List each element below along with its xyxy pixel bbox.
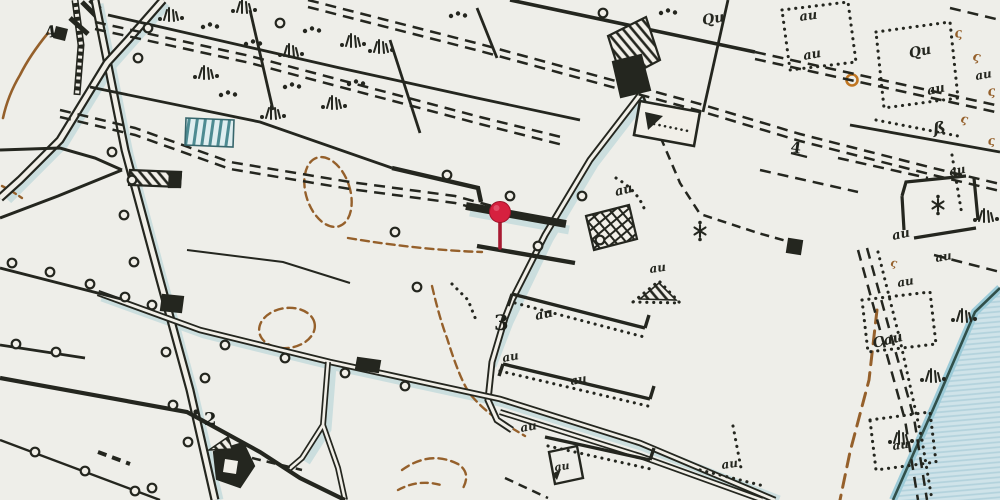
tree-marker — [281, 354, 290, 363]
tree-marker — [120, 211, 129, 220]
script-mark-au: au — [554, 459, 571, 474]
tree-marker — [121, 293, 130, 302]
pin-highlight — [494, 205, 500, 211]
script-mark-au: au — [896, 273, 915, 290]
script-mark-au: au — [720, 456, 739, 472]
script-mark-au: au — [501, 348, 520, 365]
tree-marker — [81, 467, 90, 476]
tree-marker — [534, 242, 543, 251]
tree-marker — [413, 283, 422, 292]
script-mark-au: au — [802, 46, 822, 64]
script-mark-au: au — [648, 260, 667, 276]
parcel-number-2: 2 — [204, 409, 217, 430]
building-solid — [161, 295, 183, 312]
tree-marker — [144, 24, 153, 33]
tree-marker — [578, 192, 587, 201]
tree-marker — [31, 448, 40, 457]
tree-marker — [169, 401, 178, 410]
tree-marker — [341, 369, 350, 378]
tree-marker — [391, 228, 400, 237]
script-mark-au: au — [519, 418, 538, 435]
tree-marker — [276, 19, 285, 28]
script-mark-au: au — [934, 248, 953, 265]
tree-marker — [46, 268, 55, 277]
tree-marker — [86, 280, 95, 289]
tree-marker — [8, 259, 17, 268]
script-mark-au: au — [974, 66, 993, 83]
tree-marker — [148, 301, 157, 310]
tree-marker — [443, 171, 452, 180]
tree-marker — [221, 341, 230, 350]
farm-courtyard — [223, 459, 238, 474]
building-solid — [787, 239, 802, 254]
tree-marker — [401, 382, 410, 391]
historical-map-canvas: 4 2 3 4 Qu Qu au au au au au au au au au… — [0, 0, 1000, 500]
tree-marker — [162, 348, 171, 357]
tree-marker — [599, 9, 608, 18]
script-mark-au: au — [798, 8, 818, 25]
junction-dot — [193, 409, 198, 414]
tree-marker — [506, 192, 515, 201]
plantation-bars — [185, 118, 234, 147]
tree-marker — [108, 148, 117, 157]
tree-marker — [134, 54, 143, 63]
tree-marker — [201, 374, 210, 383]
script-mark-au: au — [891, 437, 910, 453]
building-solid — [356, 358, 380, 372]
tree-marker — [184, 438, 193, 447]
tree-marker — [52, 348, 61, 357]
tree-marker — [131, 487, 140, 496]
tree-marker — [148, 484, 157, 493]
tree-marker — [596, 236, 605, 245]
parcel-number-3: 3 — [494, 310, 509, 335]
tree-marker — [130, 258, 139, 267]
script-mark-au: au — [569, 371, 588, 388]
tree-marker — [12, 340, 21, 349]
pin-head — [490, 202, 511, 223]
tree-marker — [128, 176, 137, 185]
building-solid — [169, 172, 181, 187]
